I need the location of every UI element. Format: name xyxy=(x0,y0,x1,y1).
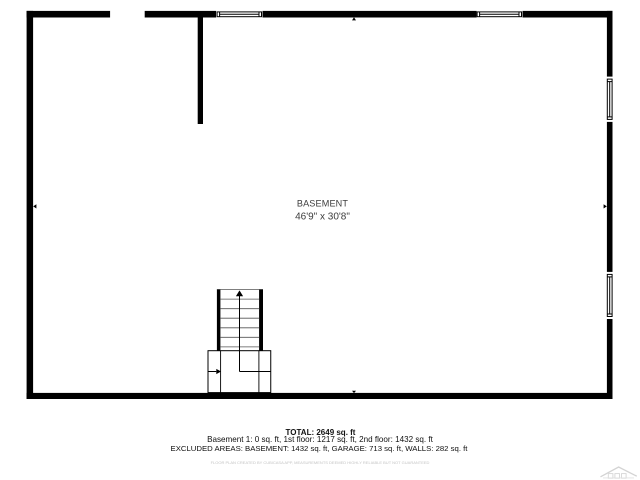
svg-text:BASEMENT: BASEMENT xyxy=(297,199,349,209)
svg-text:46'9" x 30'8": 46'9" x 30'8" xyxy=(295,212,350,223)
svg-text:FLOOR PLAN CREATED BY CUBICASA: FLOOR PLAN CREATED BY CUBICASA APP, MEAS… xyxy=(211,460,430,465)
svg-text:Basement 1: 0 sq. ft, 1st floo: Basement 1: 0 sq. ft, 1st floor: 1217 sq… xyxy=(207,435,434,444)
svg-text:EXCLUDED AREAS: BASEMENT: 1432: EXCLUDED AREAS: BASEMENT: 1432 sq. ft, G… xyxy=(171,444,469,453)
